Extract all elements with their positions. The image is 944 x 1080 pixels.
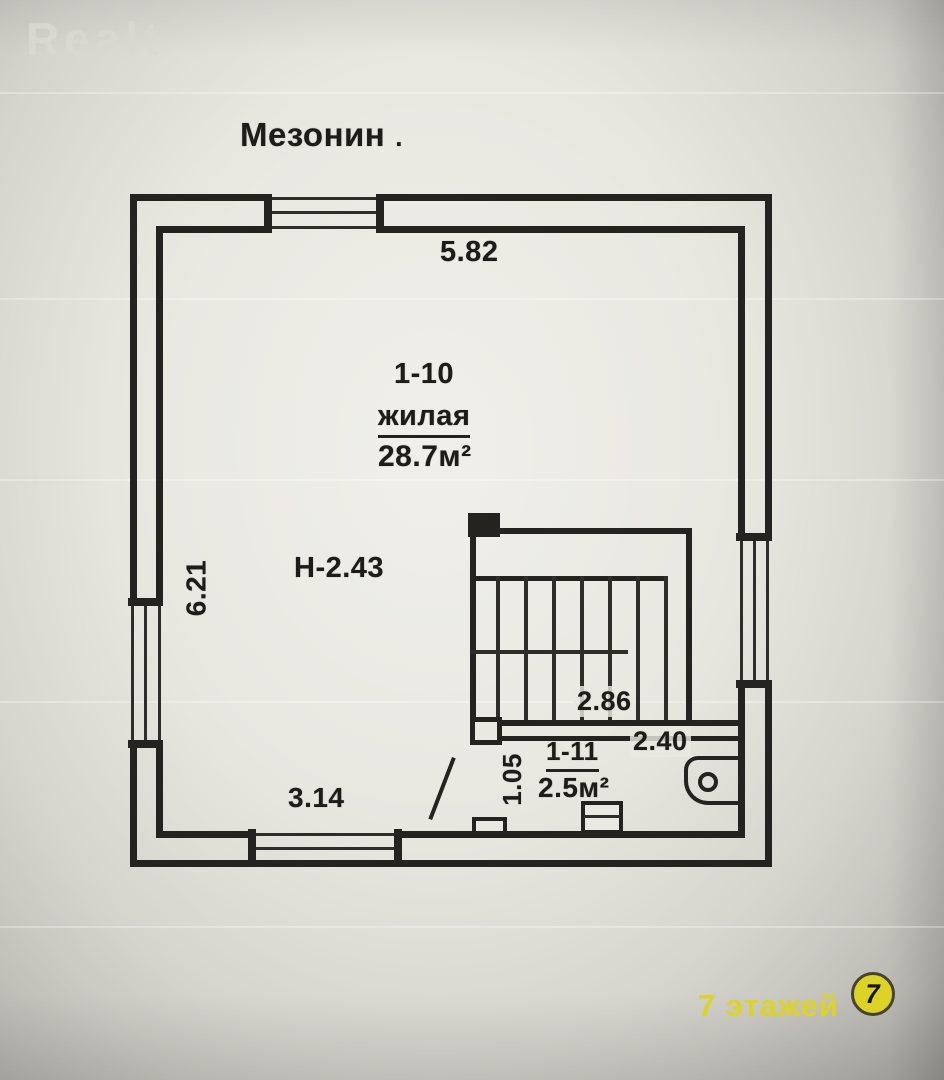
wall-bottom-inner xyxy=(398,831,745,838)
landing-wall-line xyxy=(470,720,742,726)
toilet-drain-circle xyxy=(698,772,718,792)
wall-right-inner xyxy=(738,226,745,537)
window-right-line xyxy=(766,537,769,684)
landing-wall-line xyxy=(498,736,742,741)
window-left-line xyxy=(131,602,134,744)
wall-right-outer xyxy=(765,194,772,537)
window-top-cap xyxy=(264,194,272,233)
window-right-cap xyxy=(736,533,772,541)
stair-tread xyxy=(636,576,640,726)
stair-enclosure-top xyxy=(498,528,692,534)
stair-handrail-line xyxy=(470,650,628,654)
window-bottom-cap xyxy=(248,829,256,867)
wall-left-inner xyxy=(156,226,163,602)
stair-left-edge xyxy=(470,534,476,726)
floorplan-photo: Realt Мезонин. xyxy=(0,0,944,1080)
dim-stair-width: 2.86 xyxy=(574,686,635,717)
door-jamb-stub xyxy=(472,817,507,835)
window-bottom-line xyxy=(252,833,398,836)
room1-number: 1-10 xyxy=(394,358,454,391)
dim-landing-width: 2.40 xyxy=(630,726,691,757)
window-top-line xyxy=(268,197,382,200)
dim-top-width: 5.82 xyxy=(440,236,498,269)
wall-top-inner xyxy=(156,226,270,233)
paper-crease xyxy=(0,479,944,481)
wall-top-outer xyxy=(380,194,772,201)
window-top-line xyxy=(268,226,382,229)
toilet-fixture xyxy=(684,756,742,805)
realt-watermark-logo: Realt xyxy=(26,12,163,66)
landing-post xyxy=(470,717,502,745)
dim-room2-depth: 1.05 xyxy=(497,753,528,806)
paper-crease xyxy=(0,298,944,300)
paper-crease xyxy=(0,92,944,94)
stair-enclosure-right xyxy=(686,528,692,726)
room2-area: 2.5м² xyxy=(538,772,609,804)
window-left-cap xyxy=(128,598,163,606)
title-dot: . xyxy=(395,122,403,152)
paper-crease xyxy=(0,926,944,928)
door-leaf-line xyxy=(428,757,455,820)
wall-left-outer xyxy=(130,744,137,867)
window-top-line xyxy=(268,211,382,214)
window-left-cap xyxy=(128,740,163,748)
stair-tread xyxy=(664,576,668,726)
room2-number: 1-11 xyxy=(546,736,599,772)
window-bottom-line xyxy=(252,847,398,850)
wall-bottom-inner xyxy=(156,831,252,838)
dim-bottom-width: 3.14 xyxy=(288,782,345,814)
plan-title: Мезонин. xyxy=(240,116,403,154)
floors-badge-icon: 7 xyxy=(851,972,895,1016)
wall-top-outer xyxy=(130,194,270,201)
wall-bottom-outer xyxy=(130,860,772,867)
wall-left-inner xyxy=(156,744,163,838)
wall-top-inner xyxy=(380,226,745,233)
window-left-line xyxy=(158,602,161,744)
window-top-cap xyxy=(376,194,384,233)
room1-name: жилая xyxy=(378,400,470,438)
vent-shaft-divider xyxy=(584,815,620,818)
wall-right-outer xyxy=(765,684,772,867)
floors-count-label: 7 этажей xyxy=(698,988,839,1024)
window-left-line xyxy=(144,602,147,744)
window-bottom-cap xyxy=(394,829,402,867)
room1-area: 28.7м² xyxy=(378,440,472,474)
dim-left-height: 6.21 xyxy=(180,560,212,617)
window-right-line xyxy=(753,537,756,684)
window-right-line xyxy=(740,537,743,684)
floor-height-label: Н-2.43 xyxy=(294,552,384,585)
wall-left-outer xyxy=(130,194,137,602)
window-right-cap xyxy=(736,680,772,688)
